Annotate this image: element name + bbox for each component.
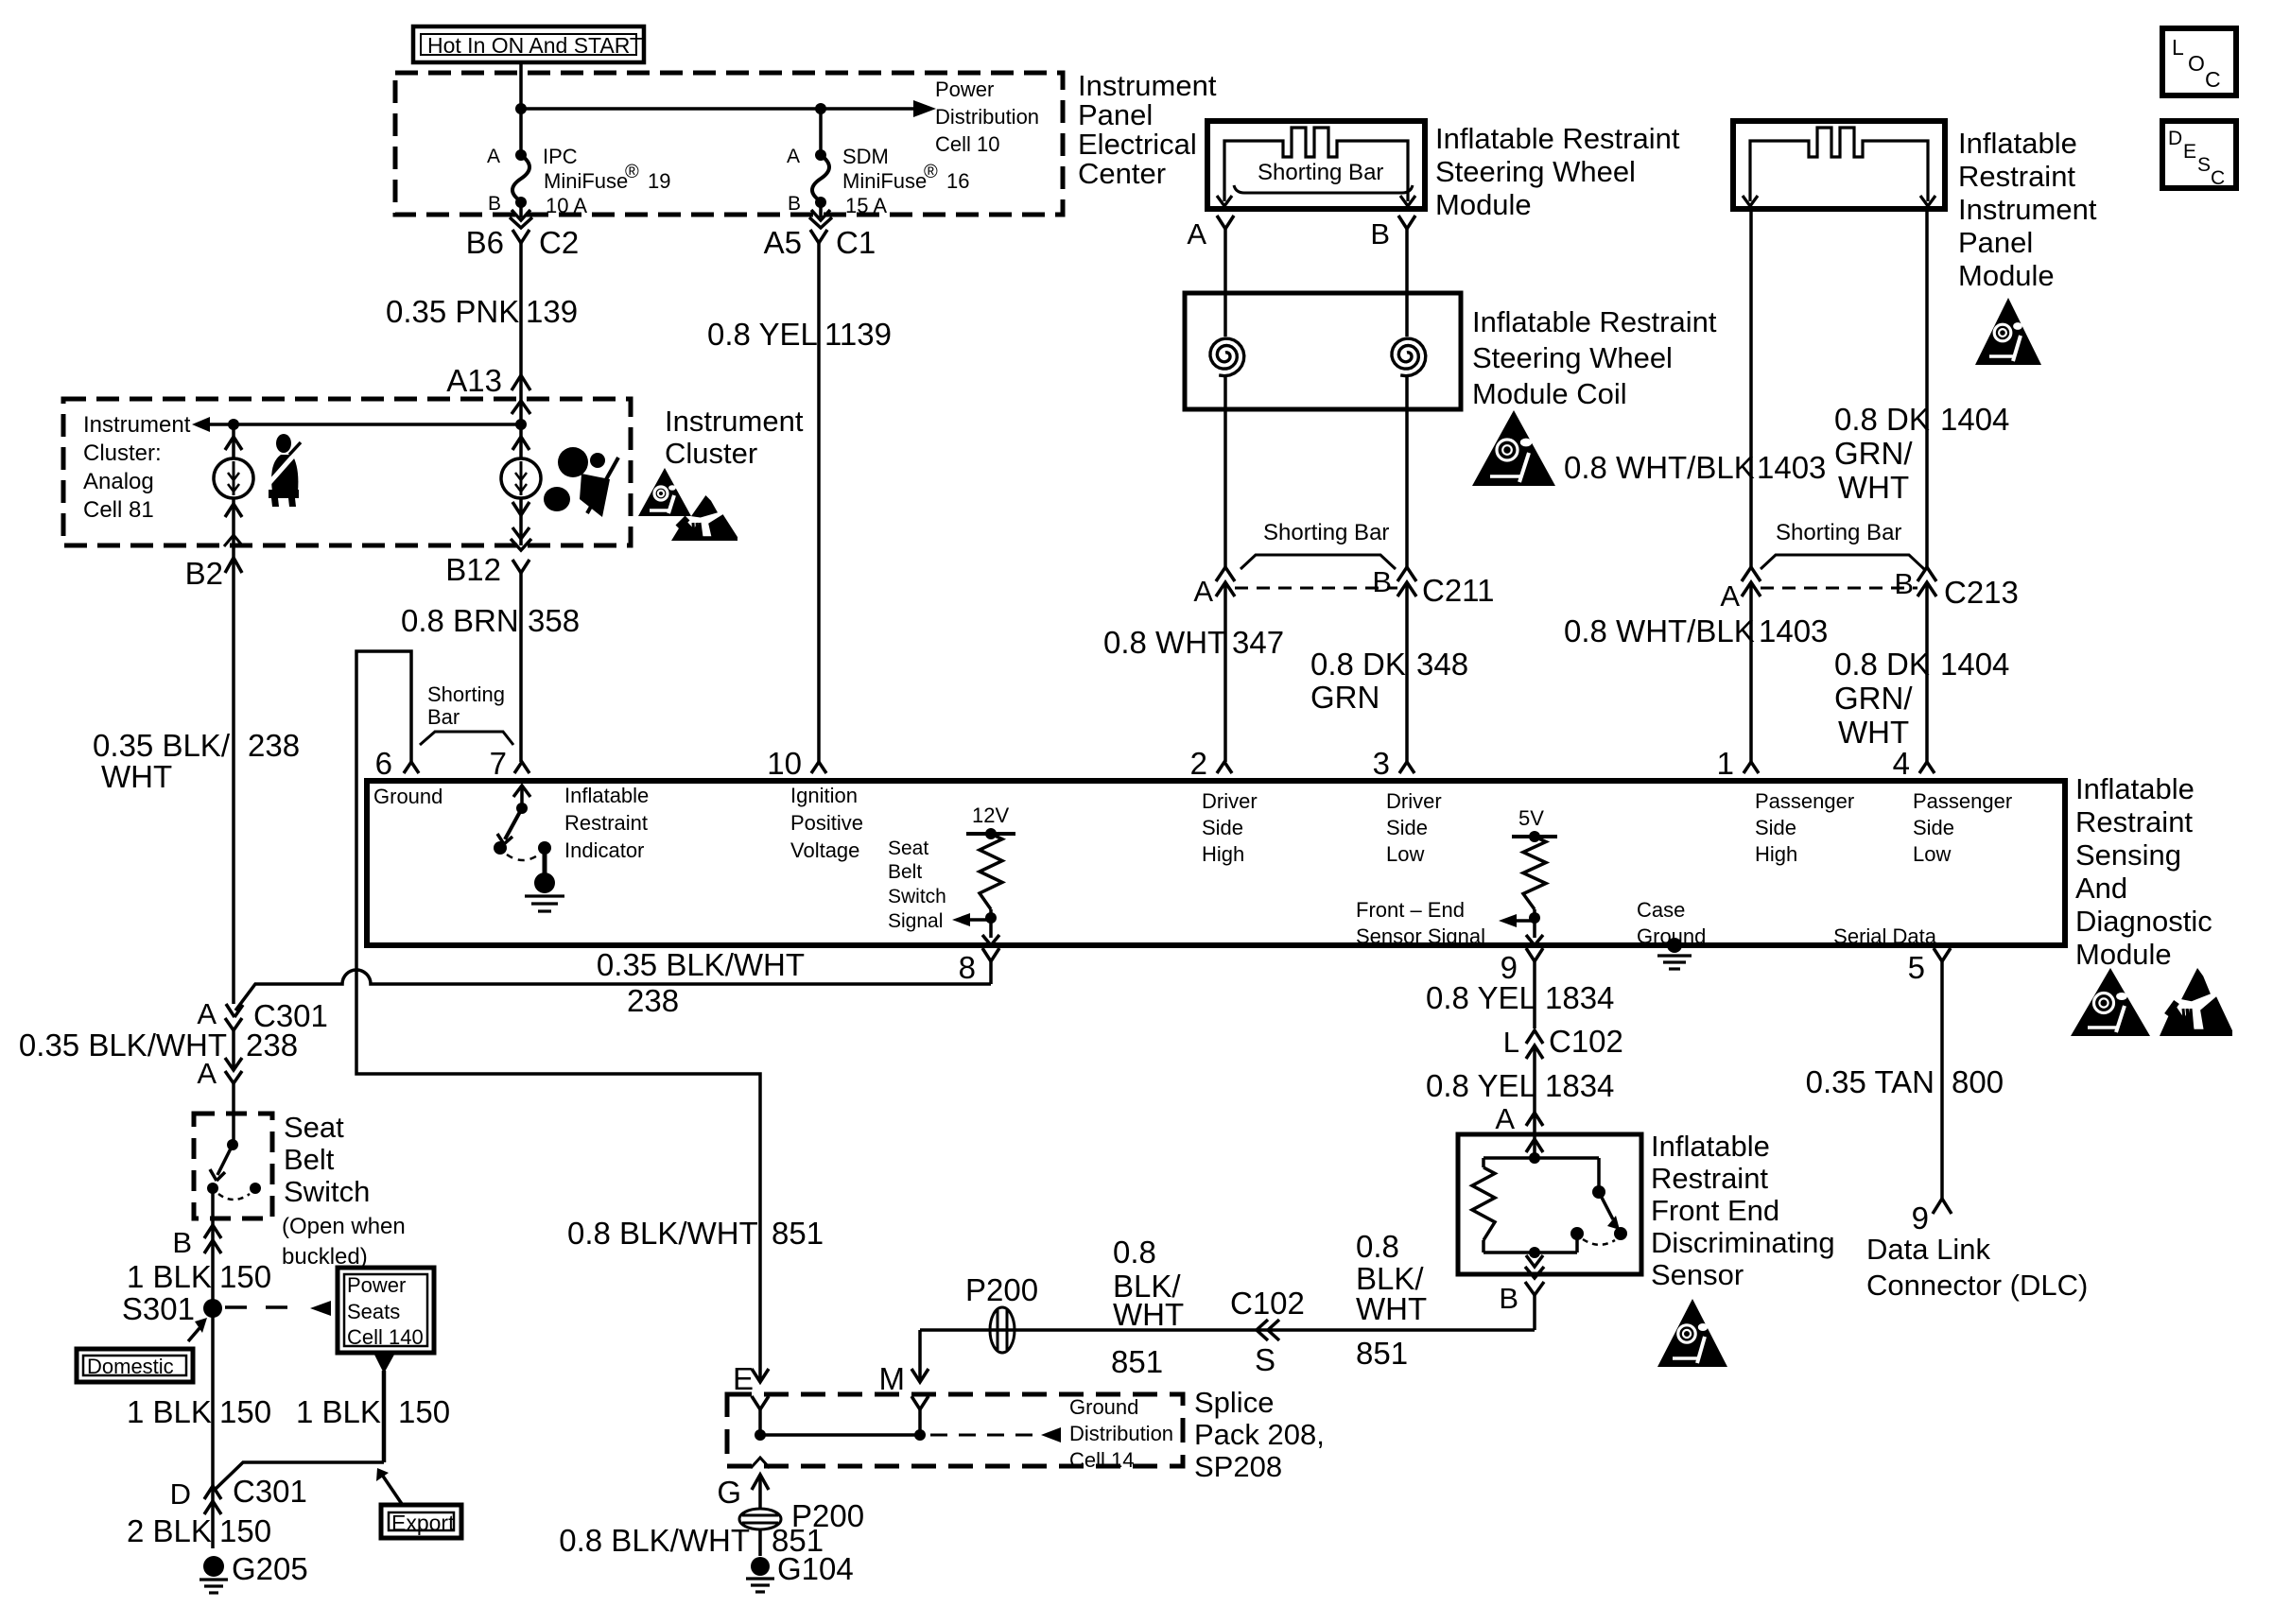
svg-text:0.8 DK: 0.8 DK: [1834, 647, 1930, 682]
svg-text:Switch: Switch: [888, 886, 946, 907]
svg-text:Shorting: Shorting: [427, 682, 505, 706]
svg-text:5: 5: [1908, 950, 1925, 985]
svg-text:238: 238: [246, 1028, 298, 1063]
svg-text:G205: G205: [232, 1551, 308, 1586]
svg-text:®: ®: [625, 162, 639, 182]
svg-text:0.8 BLK/WHT: 0.8 BLK/WHT: [559, 1523, 750, 1558]
svg-text:Cell 10: Cell 10: [935, 132, 999, 156]
svg-text:Voltage: Voltage: [790, 838, 859, 862]
svg-text:Distribution: Distribution: [1069, 1422, 1173, 1445]
svg-text:B: B: [1499, 1282, 1518, 1315]
svg-text:0.35 TAN: 0.35 TAN: [1806, 1064, 1935, 1099]
svg-text:A: A: [197, 1057, 217, 1090]
svg-text:Passenger: Passenger: [1913, 789, 2012, 813]
svg-text:Ground: Ground: [373, 785, 442, 808]
svg-text:5V: 5V: [1518, 806, 1544, 830]
svg-text:B6: B6: [466, 225, 504, 260]
svg-text:1 BLK: 1 BLK: [127, 1394, 212, 1429]
svg-text:Shorting Bar: Shorting Bar: [1263, 520, 1389, 545]
svg-text:Cluster: Cluster: [665, 437, 757, 470]
svg-text:Shorting Bar: Shorting Bar: [1258, 160, 1383, 185]
svg-text:S: S: [1255, 1342, 1275, 1377]
svg-text:Module: Module: [1958, 259, 2055, 292]
svg-text:0.8 DK: 0.8 DK: [1310, 647, 1406, 682]
svg-text:Inflatable: Inflatable: [564, 784, 649, 807]
svg-text:1834: 1834: [1545, 1068, 1614, 1103]
svg-text:Hot In ON And START: Hot In ON And START: [427, 33, 643, 58]
svg-text:16: 16: [946, 169, 969, 193]
svg-text:Driver: Driver: [1386, 789, 1442, 813]
svg-text:MiniFuse: MiniFuse: [842, 169, 927, 193]
svg-text:C: C: [2211, 167, 2225, 189]
svg-text:A5: A5: [764, 225, 802, 260]
svg-text:Restraint: Restraint: [1958, 160, 2075, 193]
svg-text:Inflatable: Inflatable: [1958, 127, 2077, 160]
svg-text:Driver: Driver: [1202, 789, 1258, 813]
svg-text:Restraint: Restraint: [564, 811, 648, 835]
svg-text:Front End: Front End: [1651, 1194, 1779, 1227]
svg-text:A: A: [197, 997, 217, 1030]
svg-text:L: L: [1503, 1026, 1519, 1059]
svg-text:C213: C213: [1944, 575, 2019, 610]
svg-text:A: A: [1720, 579, 1740, 613]
svg-text:A: A: [1193, 575, 1213, 608]
svg-text:A: A: [787, 146, 800, 167]
svg-text:Cell 14: Cell 14: [1069, 1448, 1134, 1472]
svg-text:Belt: Belt: [888, 861, 922, 883]
svg-text:Ignition: Ignition: [790, 784, 858, 807]
svg-text:Inflatable Restraint: Inflatable Restraint: [1435, 122, 1680, 155]
svg-text:Inflatable: Inflatable: [1651, 1130, 1770, 1163]
svg-text:C301: C301: [233, 1474, 307, 1509]
svg-text:GRN: GRN: [1310, 680, 1379, 715]
svg-text:1404: 1404: [1940, 402, 2009, 437]
svg-text:Steering Wheel: Steering Wheel: [1472, 341, 1673, 374]
svg-text:Positive: Positive: [790, 811, 863, 835]
svg-text:Module: Module: [2075, 938, 2172, 971]
svg-text:SP208: SP208: [1194, 1450, 1282, 1483]
svg-text:M: M: [879, 1361, 906, 1396]
svg-text:1403: 1403: [1759, 613, 1828, 648]
svg-text:Instrument: Instrument: [665, 405, 804, 438]
svg-text:Discriminating: Discriminating: [1651, 1226, 1835, 1259]
svg-text:Analog: Analog: [83, 469, 154, 494]
svg-text:G104: G104: [777, 1551, 854, 1586]
svg-text:Cell 140: Cell 140: [347, 1325, 424, 1349]
svg-text:C102: C102: [1549, 1024, 1623, 1059]
svg-text:0.35 BLK/WHT: 0.35 BLK/WHT: [19, 1028, 227, 1063]
svg-text:3: 3: [1373, 746, 1390, 781]
svg-text:800: 800: [1952, 1064, 2004, 1099]
svg-text:7: 7: [490, 746, 507, 781]
svg-text:150: 150: [398, 1394, 450, 1429]
svg-text:1834: 1834: [1545, 980, 1614, 1015]
svg-text:348: 348: [1416, 647, 1468, 682]
svg-text:9: 9: [1912, 1201, 1929, 1235]
svg-text:Instrument: Instrument: [1958, 193, 2097, 226]
svg-text:Cell 81: Cell 81: [83, 497, 154, 523]
svg-text:0.35 PNK: 0.35 PNK: [386, 294, 519, 329]
svg-text:Panel: Panel: [1078, 98, 1153, 131]
svg-text:L: L: [2172, 35, 2184, 60]
svg-text:Indicator: Indicator: [564, 838, 644, 862]
svg-text:19: 19: [648, 169, 670, 193]
svg-text:0.8 YEL: 0.8 YEL: [707, 317, 818, 352]
svg-text:Splice: Splice: [1194, 1386, 1274, 1419]
svg-text:6: 6: [375, 746, 392, 781]
svg-text:WHT: WHT: [101, 759, 172, 794]
svg-text:8: 8: [959, 950, 976, 985]
svg-text:347: 347: [1232, 625, 1284, 660]
svg-text:0.35 BLK/WHT: 0.35 BLK/WHT: [597, 947, 805, 982]
svg-text:Seat: Seat: [284, 1111, 344, 1144]
svg-text:E: E: [2183, 141, 2196, 163]
svg-text:Cluster:: Cluster:: [83, 441, 162, 466]
svg-text:1 BLK: 1 BLK: [127, 1259, 212, 1294]
svg-text:IPC: IPC: [543, 145, 578, 168]
svg-text:WHT: WHT: [1838, 470, 1909, 505]
svg-text:Bar: Bar: [427, 705, 460, 729]
svg-text:A: A: [1187, 217, 1206, 251]
svg-text:SDM: SDM: [842, 145, 889, 168]
svg-text:Passenger: Passenger: [1755, 789, 1854, 813]
svg-text:Low: Low: [1913, 842, 1951, 866]
svg-text:851: 851: [772, 1216, 824, 1251]
svg-text:GRN/: GRN/: [1834, 681, 1913, 716]
svg-text:0.8 BLK/WHT: 0.8 BLK/WHT: [567, 1216, 758, 1251]
svg-text:Seat: Seat: [888, 838, 928, 859]
svg-text:0.8: 0.8: [1356, 1229, 1399, 1264]
svg-text:Electrical: Electrical: [1078, 128, 1197, 161]
svg-text:S301: S301: [122, 1291, 195, 1326]
svg-text:0.8 YEL: 0.8 YEL: [1426, 980, 1536, 1015]
svg-text:A13: A13: [446, 363, 502, 398]
svg-text:Export: Export: [391, 1511, 455, 1535]
svg-text:Diagnostic: Diagnostic: [2075, 905, 2212, 938]
svg-text:Distribution: Distribution: [935, 105, 1039, 129]
svg-text:851: 851: [1356, 1336, 1408, 1371]
svg-text:B: B: [1370, 217, 1390, 251]
svg-text:139: 139: [526, 294, 578, 329]
svg-text:C102: C102: [1230, 1286, 1305, 1321]
svg-text:Inflatable: Inflatable: [2075, 772, 2195, 805]
svg-text:High: High: [1202, 842, 1244, 866]
svg-text:Power: Power: [347, 1273, 406, 1297]
svg-text:Side: Side: [1386, 816, 1428, 839]
svg-text:Sensor Signal: Sensor Signal: [1356, 924, 1485, 948]
svg-text:Restraint: Restraint: [2075, 805, 2193, 838]
svg-text:B: B: [488, 193, 501, 215]
svg-text:Signal: Signal: [888, 910, 943, 932]
svg-text:Case: Case: [1637, 898, 1685, 922]
svg-text:2 BLK: 2 BLK: [127, 1513, 212, 1548]
svg-text:O: O: [2188, 51, 2205, 76]
svg-text:Ground: Ground: [1069, 1395, 1138, 1419]
svg-text:15 A: 15 A: [845, 194, 887, 217]
svg-text:B12: B12: [445, 552, 501, 587]
svg-text:B2: B2: [185, 556, 223, 591]
svg-text:358: 358: [528, 603, 580, 638]
svg-text:Low: Low: [1386, 842, 1424, 866]
svg-text:C1: C1: [836, 225, 876, 260]
svg-text:P200: P200: [965, 1272, 1038, 1307]
svg-text:And: And: [2075, 872, 2127, 905]
svg-text:(Open when: (Open when: [282, 1214, 406, 1239]
svg-text:C211: C211: [1422, 573, 1494, 608]
svg-text:Power: Power: [935, 78, 994, 101]
svg-text:A: A: [1495, 1102, 1515, 1135]
svg-text:1139: 1139: [824, 317, 892, 352]
svg-text:Side: Side: [1755, 816, 1796, 839]
svg-text:G: G: [717, 1475, 741, 1510]
svg-text:GRN/: GRN/: [1834, 436, 1913, 471]
svg-text:Front – End: Front – End: [1356, 898, 1465, 922]
svg-text:238: 238: [627, 983, 679, 1018]
svg-text:0.35 BLK/: 0.35 BLK/: [93, 728, 231, 763]
svg-text:Side: Side: [1913, 816, 1954, 839]
svg-text:Steering Wheel: Steering Wheel: [1435, 155, 1636, 188]
svg-text:Panel: Panel: [1958, 226, 2033, 259]
svg-text:Sensing: Sensing: [2075, 838, 2181, 872]
svg-text:150: 150: [219, 1394, 271, 1429]
svg-text:0.8 DK: 0.8 DK: [1834, 402, 1930, 437]
svg-text:12V: 12V: [972, 803, 1009, 827]
svg-text:Domestic: Domestic: [87, 1355, 174, 1378]
svg-text:C2: C2: [539, 225, 579, 260]
svg-text:MiniFuse: MiniFuse: [544, 169, 628, 193]
svg-text:Module: Module: [1435, 188, 1532, 221]
svg-text:®: ®: [924, 162, 938, 182]
svg-text:Seats: Seats: [347, 1300, 400, 1323]
svg-text:0.8 WHT/BLK: 0.8 WHT/BLK: [1564, 613, 1755, 648]
svg-text:WHT: WHT: [1838, 715, 1909, 750]
svg-text:0.8 YEL: 0.8 YEL: [1426, 1068, 1536, 1103]
svg-text:10: 10: [767, 746, 802, 781]
svg-text:Switch: Switch: [284, 1175, 370, 1208]
svg-text:0.8 BRN: 0.8 BRN: [401, 603, 519, 638]
svg-text:238: 238: [248, 728, 300, 763]
svg-text:E: E: [733, 1361, 754, 1396]
svg-text:4: 4: [1893, 746, 1910, 781]
svg-text:Sensor: Sensor: [1651, 1258, 1744, 1291]
svg-text:B: B: [1372, 565, 1392, 598]
svg-text:B: B: [172, 1226, 192, 1259]
svg-text:Center: Center: [1078, 157, 1166, 190]
svg-text:1: 1: [1717, 746, 1734, 781]
svg-text:High: High: [1755, 842, 1797, 866]
svg-text:Inflatable Restraint: Inflatable Restraint: [1472, 305, 1717, 338]
svg-text:B: B: [1894, 567, 1914, 600]
svg-text:0.8 WHT/BLK: 0.8 WHT/BLK: [1564, 450, 1755, 485]
svg-text:1403: 1403: [1757, 450, 1826, 485]
svg-text:Restraint: Restraint: [1651, 1162, 1768, 1195]
svg-text:851: 851: [1111, 1344, 1163, 1379]
svg-text:Serial Data: Serial Data: [1833, 924, 1937, 948]
svg-text:S: S: [2197, 154, 2211, 176]
svg-text:D: D: [2168, 128, 2182, 149]
svg-text:0.8 WHT: 0.8 WHT: [1103, 625, 1226, 660]
svg-text:WHT: WHT: [1356, 1291, 1427, 1326]
svg-text:WHT: WHT: [1113, 1297, 1184, 1332]
svg-text:C: C: [2205, 67, 2221, 92]
svg-text:Module Coil: Module Coil: [1472, 377, 1627, 410]
svg-text:Instrument: Instrument: [83, 412, 191, 438]
svg-text:Connector (DLC): Connector (DLC): [1866, 1269, 2088, 1302]
svg-text:0.8: 0.8: [1113, 1235, 1156, 1270]
svg-text:Belt: Belt: [284, 1143, 335, 1176]
svg-text:D: D: [170, 1477, 191, 1511]
svg-text:2: 2: [1190, 746, 1207, 781]
svg-text:Side: Side: [1202, 816, 1243, 839]
svg-text:150: 150: [219, 1513, 271, 1548]
svg-text:10 A: 10 A: [546, 194, 587, 217]
svg-text:B: B: [788, 193, 801, 215]
svg-text:1404: 1404: [1940, 647, 2009, 682]
svg-text:A: A: [487, 146, 500, 167]
svg-text:Data Link: Data Link: [1866, 1233, 1990, 1266]
svg-text:Shorting Bar: Shorting Bar: [1776, 520, 1901, 545]
svg-text:Pack 208,: Pack 208,: [1194, 1418, 1325, 1451]
svg-text:1 BLK: 1 BLK: [296, 1394, 381, 1429]
svg-text:150: 150: [219, 1259, 271, 1294]
svg-text:Instrument: Instrument: [1078, 69, 1217, 102]
